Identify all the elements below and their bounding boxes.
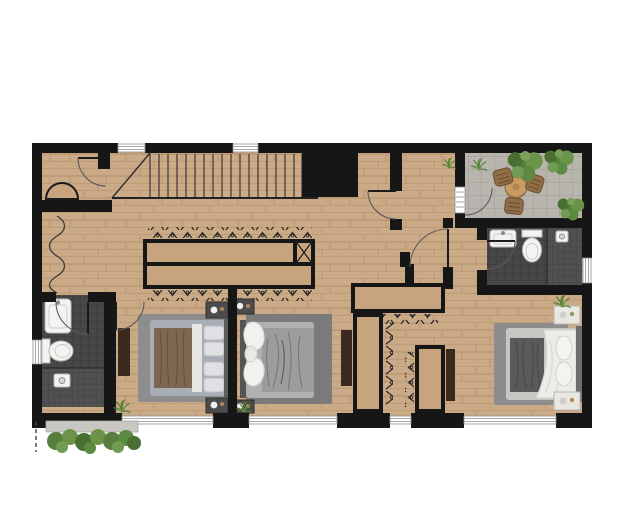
stair-side-wall-block: [302, 153, 358, 197]
pillow: [204, 326, 224, 340]
window: [233, 144, 258, 152]
bed-blanket: [154, 328, 192, 388]
window: [118, 144, 145, 152]
wicker-chair: [504, 197, 524, 215]
nightstand: [554, 306, 580, 324]
bed-sheet: [192, 324, 202, 392]
floor-plan-canvas: [0, 0, 623, 532]
pillow: [245, 346, 257, 362]
pillow: [204, 378, 224, 392]
dresser: [341, 330, 352, 386]
closet-strip-west-shelf: [357, 317, 379, 409]
hanger-rail: [384, 322, 393, 406]
outside-landscaping: [36, 421, 141, 454]
hedge: [47, 429, 141, 454]
sink: [490, 230, 516, 247]
nightstand: [206, 398, 228, 413]
pillow: [556, 362, 572, 386]
dresser: [446, 349, 455, 401]
headboard: [576, 326, 582, 402]
floor-plan: [0, 0, 623, 532]
bed-blanket: [262, 328, 314, 392]
hanger-rail: [405, 352, 414, 408]
window: [249, 416, 337, 424]
hanger-rail: [148, 227, 312, 238]
nightstand: [554, 392, 580, 410]
window: [33, 340, 41, 364]
central-wardrobe-top-shelf: [147, 243, 293, 262]
window: [464, 416, 556, 424]
storage-room-wall: [32, 200, 112, 212]
nightstand: [206, 302, 228, 318]
bathroom-bedroom-wall: [104, 292, 116, 415]
closet-bar-shelf: [355, 287, 441, 309]
sink: [45, 299, 71, 333]
pillow: [204, 362, 224, 376]
toilet: [42, 339, 73, 363]
bedroom-partition-wall: [228, 289, 237, 413]
window: [583, 258, 591, 283]
terrace-glass-door: [455, 187, 465, 213]
toilet: [522, 230, 542, 262]
central-wardrobe-bottom-shelf: [147, 266, 311, 285]
dresser: [118, 328, 130, 376]
closet-strip-east-shelf: [419, 349, 441, 409]
bathroom-left-shower-floor: [42, 368, 104, 407]
window: [390, 416, 411, 424]
pillow: [204, 342, 224, 356]
pillow: [556, 336, 572, 360]
